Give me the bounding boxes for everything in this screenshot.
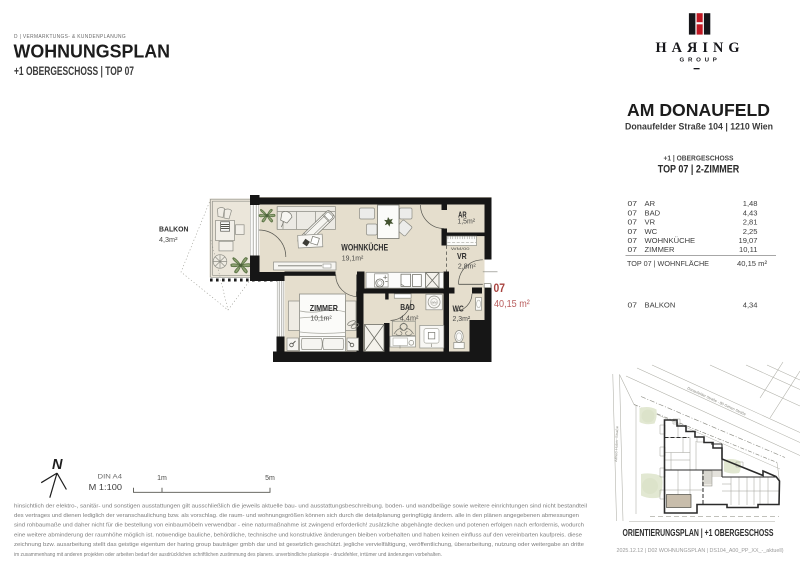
svg-text:07: 07 [628,236,638,245]
svg-text:ZIMMER: ZIMMER [645,245,675,254]
svg-text:19,1m²: 19,1m² [342,253,364,262]
svg-text:2025.12.12 | D02 WOHNUNGSPLAN: 2025.12.12 | D02 WOHNUNGSPLAN | DS104_A0… [617,548,784,554]
svg-text:4,43: 4,43 [743,209,758,218]
svg-text:BALKON: BALKON [159,225,189,234]
svg-text:GROUP: GROUP [680,58,721,64]
svg-text:07: 07 [628,227,638,236]
svg-text:2,3m²: 2,3m² [453,314,471,323]
svg-text:WOHNUNGSPLAN: WOHNUNGSPLAN [14,41,171,62]
svg-text:WOHNKÜCHE: WOHNKÜCHE [341,243,388,253]
svg-text:WC: WC [453,305,464,314]
svg-text:Donaufelder Straße - 80 Gehen: Donaufelder Straße - 80 Gehen Straße [687,386,747,416]
svg-text:2,81: 2,81 [743,218,758,227]
svg-text:40,15 m²: 40,15 m² [494,298,530,310]
svg-text:BAD: BAD [645,209,661,218]
svg-text:WOHNKÜCHE: WOHNKÜCHE [645,236,696,245]
svg-text:1,5m²: 1,5m² [457,216,475,225]
svg-text:eine weitere abminderung der r: eine weitere abminderung der raumhöhe mö… [14,532,582,538]
svg-text:WM: WM [431,300,437,304]
svg-text:N: N [52,457,63,473]
svg-text:WC: WC [645,227,658,236]
svg-text:zeichnung bzw. ausarbeitung st: zeichnung bzw. ausarbeitung stellt das g… [14,542,584,548]
svg-text:Alfred-Huber-Straße: Alfred-Huber-Straße [614,426,619,462]
svg-text:TOP 07 | WOHNFLÄCHE: TOP 07 | WOHNFLÄCHE [627,259,709,268]
svg-text:2,8m²: 2,8m² [458,261,476,270]
svg-text:4,4m²: 4,4m² [400,314,419,323]
svg-text:M 1:100: M 1:100 [89,482,123,492]
svg-text:im zusammenhang mit anderen pr: im zusammenhang mit anderen projekten od… [14,552,442,558]
svg-text:07: 07 [628,300,638,309]
svg-text:DIN A4: DIN A4 [98,474,123,481]
svg-text:ZIMMER: ZIMMER [310,304,338,313]
svg-text:1m: 1m [157,475,167,482]
svg-text:D | VERMARKTUNGS- & KUNDENPLAN: D | VERMARKTUNGS- & KUNDENPLANUNG [14,34,126,40]
svg-text:+1 OBERGESCHOSS | TOP 07: +1 OBERGESCHOSS | TOP 07 [14,65,134,78]
svg-text:07: 07 [494,283,506,295]
svg-text:2,25: 2,25 [743,227,758,236]
svg-text:BALKON: BALKON [645,300,676,309]
svg-text:WM/00: WM/00 [451,247,470,251]
svg-text:07: 07 [628,199,638,208]
svg-text:sind rohbaumaße und daher nich: sind rohbaumaße und daher nicht für die … [14,523,584,529]
svg-text:5m: 5m [265,475,275,482]
svg-text:AM DONAUFELD: AM DONAUFELD [627,100,770,120]
svg-text:ORIENTIERUNGSPLAN | +1 OBERGES: ORIENTIERUNGSPLAN | +1 OBERGESCHOSS [623,528,774,539]
svg-text:VR: VR [457,252,467,261]
svg-text:VR: VR [645,218,656,227]
svg-text:Donaufelder Straße 104 | 1210: Donaufelder Straße 104 | 1210 Wien [625,121,773,132]
svg-text:07: 07 [628,245,638,254]
svg-text:des vertrages und dienen ledig: des vertrages und dienen lediglich der v… [14,513,579,519]
svg-text:40,15 m²: 40,15 m² [737,259,767,268]
svg-text:4,3m²: 4,3m² [159,235,178,244]
svg-text:19,07: 19,07 [738,236,757,245]
svg-text:hinsichtlich der elektro-, san: hinsichtlich der elektro-, sanitär- und … [14,503,587,509]
svg-text:07: 07 [628,209,638,218]
svg-text:1,48: 1,48 [743,199,758,208]
svg-text:07: 07 [628,218,638,227]
svg-text:TOP 07 | 2-ZIMMER: TOP 07 | 2-ZIMMER [658,164,740,176]
svg-text:4,34: 4,34 [743,300,758,309]
svg-text:+1 | OBERGESCHOSS: +1 | OBERGESCHOSS [664,153,734,162]
svg-text:HAЯING: HAЯING [656,40,745,56]
svg-text:AR: AR [645,199,656,208]
svg-text:10,1m²: 10,1m² [310,314,332,323]
svg-text:BAD: BAD [400,303,415,312]
svg-text:10,11: 10,11 [739,245,757,254]
